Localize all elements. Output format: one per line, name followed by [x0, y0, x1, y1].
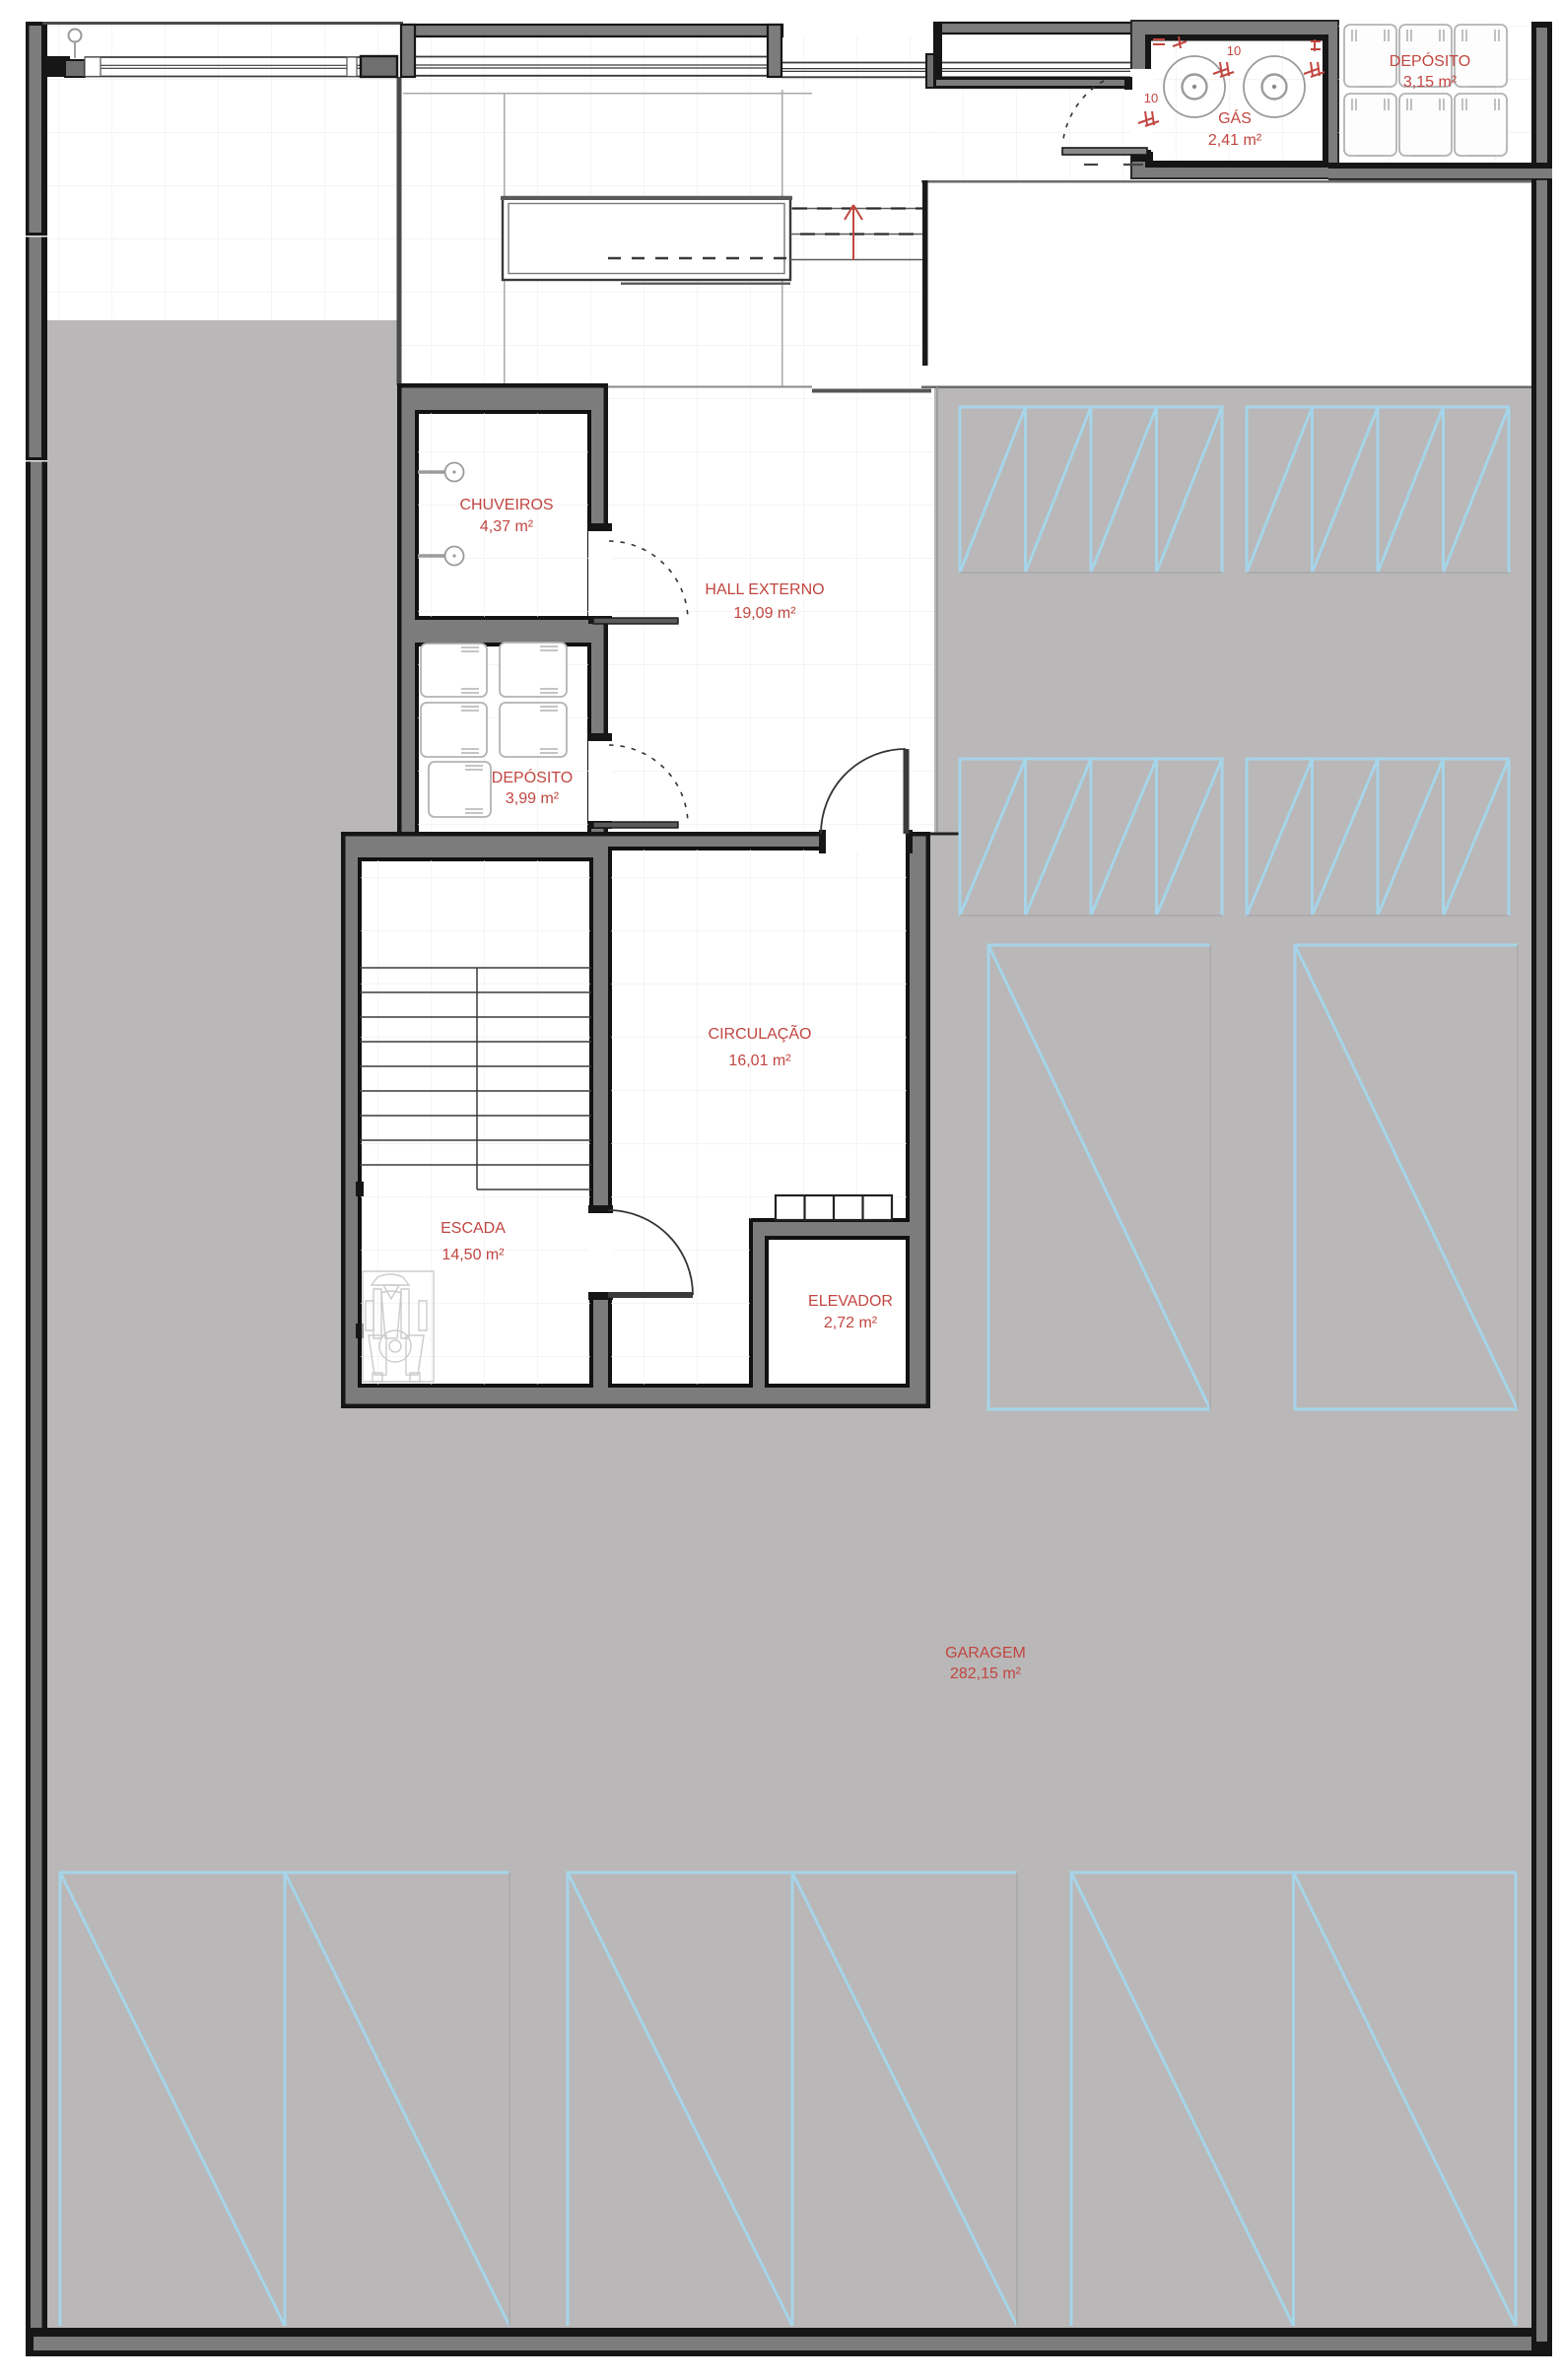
svg-text:282,15 m²: 282,15 m²: [950, 1666, 1022, 1682]
svg-text:4,37 m²: 4,37 m²: [480, 518, 534, 535]
svg-text:10: 10: [1144, 91, 1158, 105]
svg-text:3,15 m²: 3,15 m²: [1403, 74, 1458, 91]
svg-text:2,41 m²: 2,41 m²: [1208, 132, 1262, 149]
svg-text:ESCADA: ESCADA: [441, 1220, 506, 1237]
svg-text:DEPÓSITO: DEPÓSITO: [1390, 51, 1470, 70]
svg-text:14,50 m²: 14,50 m²: [441, 1247, 505, 1263]
svg-text:CHUVEIROS: CHUVEIROS: [459, 497, 553, 513]
svg-text:19,09 m²: 19,09 m²: [733, 605, 796, 622]
svg-text:16,01 m²: 16,01 m²: [728, 1053, 791, 1069]
svg-text:3,99 m²: 3,99 m²: [506, 790, 560, 807]
svg-text:GARAGEM: GARAGEM: [945, 1645, 1026, 1662]
svg-text:GÁS: GÁS: [1218, 108, 1252, 127]
svg-text:DEPÓSITO: DEPÓSITO: [492, 768, 573, 786]
svg-text:10: 10: [1227, 43, 1241, 58]
svg-text:2,72 m²: 2,72 m²: [824, 1315, 878, 1331]
svg-text:HALL EXTERNO: HALL EXTERNO: [705, 581, 824, 598]
svg-text:ELEVADOR: ELEVADOR: [808, 1293, 893, 1310]
svg-text:CIRCULAÇÃO: CIRCULAÇÃO: [709, 1023, 812, 1043]
